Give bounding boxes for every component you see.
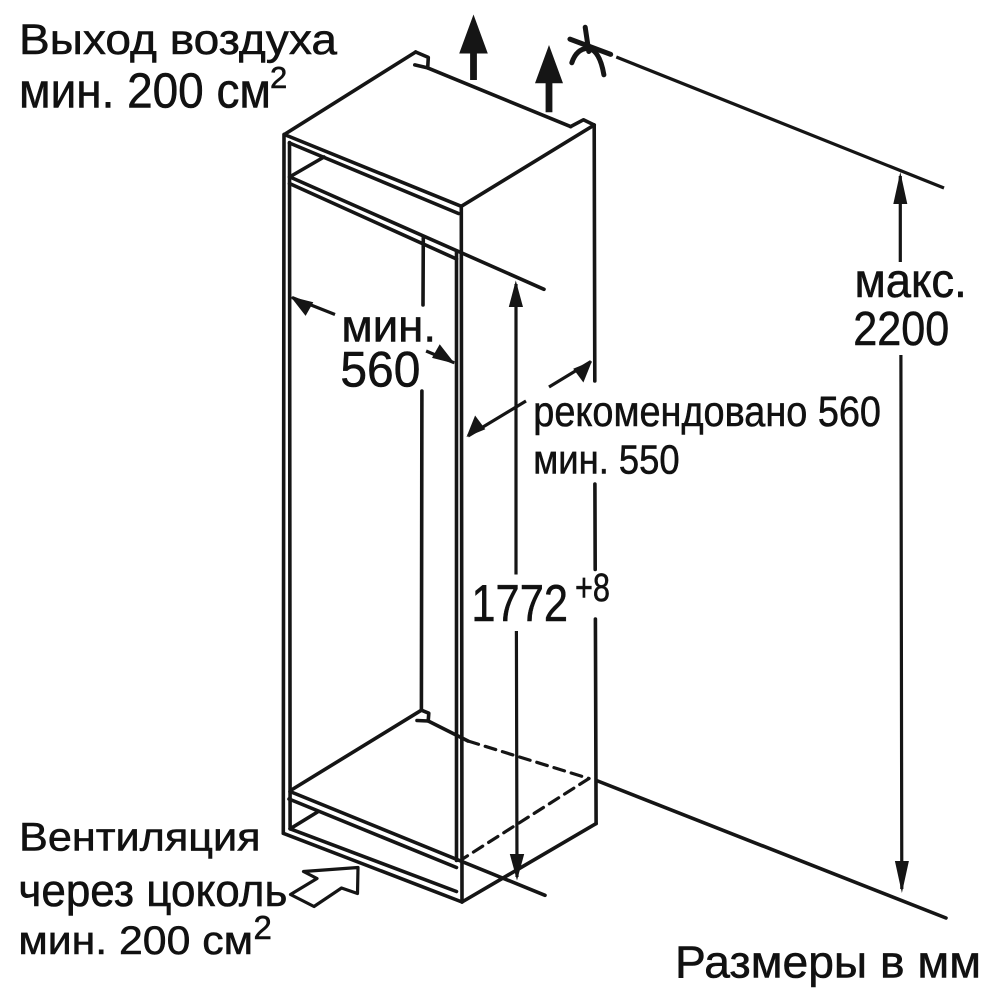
svg-text:мин. 550: мин. 550 [533, 437, 679, 483]
svg-text:макс.: макс. [855, 255, 967, 308]
svg-text:рекомендовано 560: рекомендовано 560 [533, 388, 881, 436]
svg-text:560: 560 [340, 342, 420, 398]
svg-text:2: 2 [270, 60, 287, 95]
svg-text:Выход воздуха: Выход воздуха [19, 16, 337, 64]
svg-text:2: 2 [254, 909, 272, 946]
svg-text:2200: 2200 [853, 303, 949, 356]
svg-text:Размеры в мм: Размеры в мм [675, 937, 981, 988]
svg-text:Вентиляция: Вентиляция [19, 816, 261, 860]
svg-text:1772: 1772 [471, 575, 568, 633]
svg-text:через цоколь: через цоколь [18, 865, 287, 916]
svg-text:+8: +8 [575, 566, 610, 610]
svg-text:мин. 200 см: мин. 200 см [19, 65, 271, 119]
svg-text:мин. 200 см: мин. 200 см [18, 919, 253, 963]
